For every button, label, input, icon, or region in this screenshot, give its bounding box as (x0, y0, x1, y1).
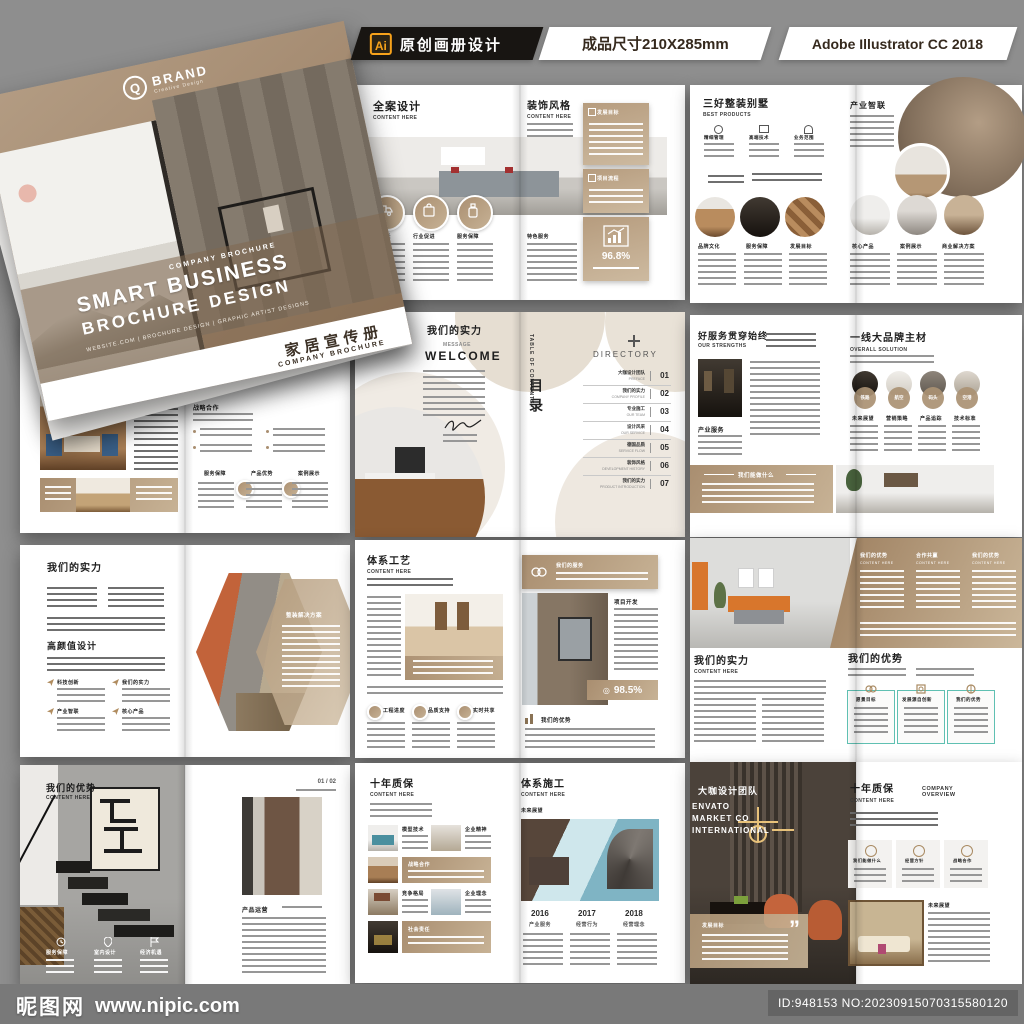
nipic-preview-page: { "colors":{"gold":"#b59b7d","ai_orange"… (0, 0, 1024, 1024)
list-item: 科技创新 (57, 679, 79, 686)
section-title: 三好整装别墅 (703, 99, 769, 111)
section-title: 装饰风格 (527, 101, 571, 113)
circle-label: 工程进度 (383, 707, 405, 714)
list-item: 我们的实力 (122, 679, 150, 686)
innovation-icon (915, 683, 927, 695)
photo-service (740, 197, 780, 237)
directory-item: 专业施工 OUR TEAM 03 (583, 404, 671, 422)
subheading: 战略合作 (193, 403, 219, 412)
bullet-dot (266, 430, 269, 433)
subheading: 产品运营 (242, 905, 268, 914)
strip-band: 战略合作 (402, 857, 491, 883)
material-tag: 空港 (956, 387, 978, 409)
section-subtitle: OVERALL SOLUTION (850, 347, 907, 353)
section-subtitle: CONTENT HERE (370, 792, 414, 798)
info-box-process: 项目流程 (583, 169, 649, 213)
stat-value: 98.5% (614, 685, 642, 696)
section-subtitle: CONTENT HERE (46, 795, 90, 801)
pin-icon (104, 937, 112, 947)
section-title: 我们的优势 (46, 783, 96, 793)
thumb-label: 模型技术 (402, 826, 424, 833)
thumb-label: 企业理念 (465, 890, 487, 897)
cooperation-icon (961, 845, 973, 857)
photo-thumb (431, 889, 461, 915)
deco-label: MESSAGE (443, 342, 471, 348)
bullet-dot (193, 446, 196, 449)
thumb-label: 竞争格局 (402, 890, 424, 897)
header-software-label: Adobe Illustrator CC 2018 (812, 36, 983, 52)
header-size-label: 成品尺寸210X285mm (582, 33, 729, 54)
header-bar: Ai 原创画册设计 成品尺寸210X285mm Adobe Illustrato… (0, 0, 1024, 70)
feature-label: 服务保障 (457, 233, 479, 240)
photo-case (897, 195, 937, 235)
signature (443, 416, 483, 432)
mini-label: 业务范围 (794, 135, 814, 141)
section-subtitle: CONTENT HERE (850, 798, 894, 804)
section-subtitle: CONTENT HERE (521, 792, 565, 798)
bullet-dot (193, 430, 196, 433)
directory-item: 德国品质 SERVICE FLOW 05 (583, 440, 671, 458)
feature-label: 行业促进 (413, 233, 435, 240)
photo-thumb (368, 825, 398, 851)
year: 2018 (625, 909, 643, 918)
service-banner: 我们的服务 (522, 555, 658, 589)
side-heading: 项目开发 (614, 598, 638, 606)
bullet-dot (266, 446, 269, 449)
section-subtitle: CONTENT HERE (527, 114, 571, 120)
target-icon (588, 108, 596, 116)
section-subtitle: CONTENT HERE (694, 669, 738, 675)
overlay-label: 经济机遇 (140, 949, 162, 956)
subheading: 未来展望 (928, 902, 950, 909)
plane-icon (47, 679, 54, 686)
mini-label: 精细管理 (704, 135, 724, 141)
section-title: 体系工艺 (367, 556, 411, 568)
team-line: ENVATO (692, 802, 730, 811)
plane-icon (112, 708, 119, 715)
advantage-box: 我们的优势 (947, 690, 995, 744)
photo-brand-culture (695, 197, 735, 237)
section-title: 我们的优势 (848, 654, 903, 666)
list-item: 核心产品 (122, 708, 144, 715)
section-subtitle: BEST PRODUCTS (703, 112, 751, 118)
year: 2017 (578, 909, 596, 918)
year-label: 产业服务 (529, 921, 551, 928)
section-title: 体系施工 (521, 779, 565, 791)
year: 2016 (531, 909, 549, 918)
column-label: 案例展示 (298, 470, 320, 477)
spread-warranty-construction: 十年质保 CONTENT HERE 模型技术 企业精神 战略合作 竞争格局 企业… (355, 763, 685, 983)
strength-icon (965, 683, 977, 695)
watermark-bar: 昵图网 www.nipic.com ID:948153 NO:202309150… (0, 984, 1024, 1024)
spread-strengths-materials: 好服务贯穿始终 OUR STRENGTHS 产业服务 我们能做什么 一线大品牌主… (690, 315, 1022, 537)
strip-band: 社会责任 (402, 921, 491, 953)
bottom-heading: 我们的优势 (541, 716, 571, 724)
site-logo: 昵图网 (16, 991, 85, 1021)
share-icon (457, 704, 473, 720)
subheading: 未来展望 (521, 807, 543, 814)
team-card: 战略合作 (944, 840, 988, 888)
quality-icon (412, 704, 428, 720)
overlay-label: 服务保障 (46, 949, 68, 956)
section-subtitle: CONTENT HERE (367, 569, 411, 575)
circle-label: 品牌文化 (698, 243, 720, 250)
brochure-cover: Q BRAND Creative Design COMPANY BROCHURE… (0, 21, 412, 421)
spread-design-team: 大咖设计团队 ENVATO MARKET CO INTERNATIONAL 发展… (690, 762, 1022, 987)
circle-label: 品质支持 (428, 707, 450, 714)
photo-thumb (368, 921, 398, 953)
bars-icon (525, 714, 537, 724)
headset-icon (804, 125, 813, 134)
circle-label: 商业解决方案 (942, 243, 975, 250)
material-tag: 航空 (888, 387, 910, 409)
policy-icon (913, 845, 925, 857)
progress-icon (367, 704, 383, 720)
section-subtitle: OUR STRENGTHS (698, 343, 747, 349)
section-title: 好服务贯穿始终 (698, 331, 768, 341)
team-card: 经营方针 (896, 840, 940, 888)
target-icon: ◎ (603, 686, 610, 695)
bottom-banner (40, 478, 178, 512)
photo-study-room (836, 465, 994, 513)
team-line: INTERNATIONAL (692, 826, 770, 835)
directory-item: 设计风采 OUR SERVICE 04 (583, 422, 671, 440)
section-title: 十年质保 (370, 779, 414, 791)
team-line: MARKET CO (692, 814, 749, 823)
plus-icon (627, 334, 641, 348)
year-label: 经营行为 (576, 921, 598, 928)
thumb-label: 企业精神 (465, 826, 487, 833)
plane-icon (47, 708, 54, 715)
spread-high-design: 我们的实力 高颜值设计 科技创新 我们的实力 产业智联 核心产品 整装解决方案 (20, 545, 350, 757)
page-number: 01 / 02 (318, 779, 336, 785)
spread-design-style: 全案设计 CONTENT HERE 经济增长 行业促进 服务保障 装饰风格 CO… (355, 85, 685, 300)
circle-label: 服务保障 (746, 243, 768, 250)
header-software-plate: Adobe Illustrator CC 2018 (779, 27, 1018, 60)
logo-q-icon: Q (121, 74, 149, 102)
plane-icon (112, 679, 119, 686)
clock-icon (56, 937, 66, 947)
quote-icon: ” (789, 916, 800, 942)
bag-icon (422, 203, 436, 218)
section-title: 全案设计 (373, 101, 421, 114)
spread-best-products: 三好整装别墅 BEST PRODUCTS 精细管理 高端技术 业务范围 品牌文化… (690, 85, 1022, 303)
material-label: 技术标准 (954, 415, 976, 422)
material-tag: 铁路 (854, 387, 876, 409)
section-title: 我们的实力 (47, 563, 102, 575)
photo-door-corridor (242, 797, 322, 895)
gold-panel: 我们的优势 CONTENT HERE 合作共赢 CONTENT HERE 我们的… (830, 538, 1022, 648)
photo-mural-livingroom (848, 900, 924, 966)
overview-label: COMPANY OVERVIEW (922, 786, 982, 798)
section-title: 产业智联 (850, 101, 886, 110)
section-title: 十年质保 (850, 784, 894, 796)
photo-core-product (850, 195, 890, 235)
feature-label: 特色服务 (527, 233, 549, 240)
circle-label: 发展目标 (790, 243, 812, 250)
directory-item: 大咖设计团队 PREFACE 01 (583, 368, 671, 386)
advantage-box: 愿景目标 (847, 690, 895, 744)
cooperation-icon (865, 683, 877, 695)
photo-goal (785, 197, 825, 237)
material-label: 营销策略 (886, 415, 908, 422)
directory-title: DIRECTORY (593, 350, 658, 359)
header-title-plate: Ai 原创画册设计 (351, 27, 544, 60)
bottle-icon (467, 203, 479, 218)
section-title: 一线大品牌主材 (850, 333, 927, 345)
section-title: 我们的实力 (427, 326, 482, 338)
photo-thumb (431, 825, 461, 851)
photo-sideboard (892, 143, 950, 201)
spread-advantage-panel: 我们的优势 CONTENT HERE 合作共赢 CONTENT HERE 我们的… (690, 538, 1022, 763)
bar-chart-icon (603, 225, 629, 247)
handshake-icon (530, 563, 548, 581)
spread-craft-service: 体系工艺 CONTENT HERE 工程进度 品质支持 实时共享 我们的服务 项… (355, 540, 685, 758)
stat-box: 96.8% (583, 217, 649, 281)
mini-label: 高端技术 (749, 135, 769, 141)
ai-icon: Ai (370, 33, 392, 55)
stat-band: ◎ 98.5% (587, 680, 658, 700)
flag-icon (150, 937, 159, 947)
photo-office (690, 538, 850, 648)
site-url: www.nipic.com (95, 995, 240, 1018)
gear-icon (714, 125, 723, 134)
circle-label: 核心产品 (852, 243, 874, 250)
material-tag: 码头 (922, 387, 944, 409)
photo-warm-livingroom (405, 594, 503, 680)
photo-solution (944, 195, 984, 235)
stat-value: 96.8% (583, 251, 649, 262)
photo-thumb (368, 889, 398, 915)
directory-item: 我们的实力 PRODUCT INTRODUCTION 07 (583, 476, 671, 493)
photo-hallway (76, 478, 130, 512)
spread-stairs-operations: 我们的优势 CONTENT HERE 服务保障 室内设计 经济机遇 01 / 0… (20, 765, 350, 987)
photo-dark-interior (698, 359, 742, 417)
directory-item: 装饰风格 DEVELOPMENT HISTORY 06 (583, 458, 671, 476)
photo-thumb (368, 857, 398, 883)
section-title: 我们的实力 (694, 656, 749, 668)
directory-list: 大咖设计团队 PREFACE 01 我们的实力 COMPANY PROFILE … (583, 368, 671, 493)
list-item: 产业智联 (57, 708, 79, 715)
what-we-do-band: 我们能做什么 (690, 465, 833, 513)
advantage-box: 发展源自创新 (897, 690, 945, 744)
section-subtitle: CONTENT HERE (373, 115, 417, 121)
header-size-plate: 成品尺寸210X285mm (539, 27, 772, 60)
photo-loft (521, 819, 659, 901)
circle-label: 案例展示 (900, 243, 922, 250)
flow-icon (588, 174, 596, 182)
subheading: 产业服务 (698, 425, 724, 434)
circle-label: 实时共享 (473, 707, 495, 714)
directory-item: 我们的实力 COMPANY PROFILE 02 (583, 386, 671, 404)
goal-panel: 发展目标 ” (690, 914, 808, 968)
material-label: 产品追踪 (920, 415, 942, 422)
column-label: 服务保障 (204, 470, 226, 477)
material-label: 未来展望 (852, 415, 874, 422)
info-box-goal: 发展目标 (583, 103, 649, 165)
image-id-badge: ID:948153 NO:20230915070315580120 (768, 990, 1018, 1016)
team-card: 我们能做什么 (848, 840, 892, 888)
subsection-title: 高颜值设计 (47, 641, 97, 651)
monitor-icon (759, 125, 769, 133)
what-icon (865, 845, 877, 857)
header-product-title: 原创画册设计 (400, 33, 502, 54)
team-title: 大咖设计团队 (698, 784, 758, 797)
toc-cn-title: 目录 (526, 378, 546, 418)
overlay-label: 室内设计 (94, 949, 116, 956)
column-label: 产品优势 (251, 470, 273, 477)
welcome-title: WELCOME (425, 350, 502, 364)
year-label: 经营理念 (623, 921, 645, 928)
